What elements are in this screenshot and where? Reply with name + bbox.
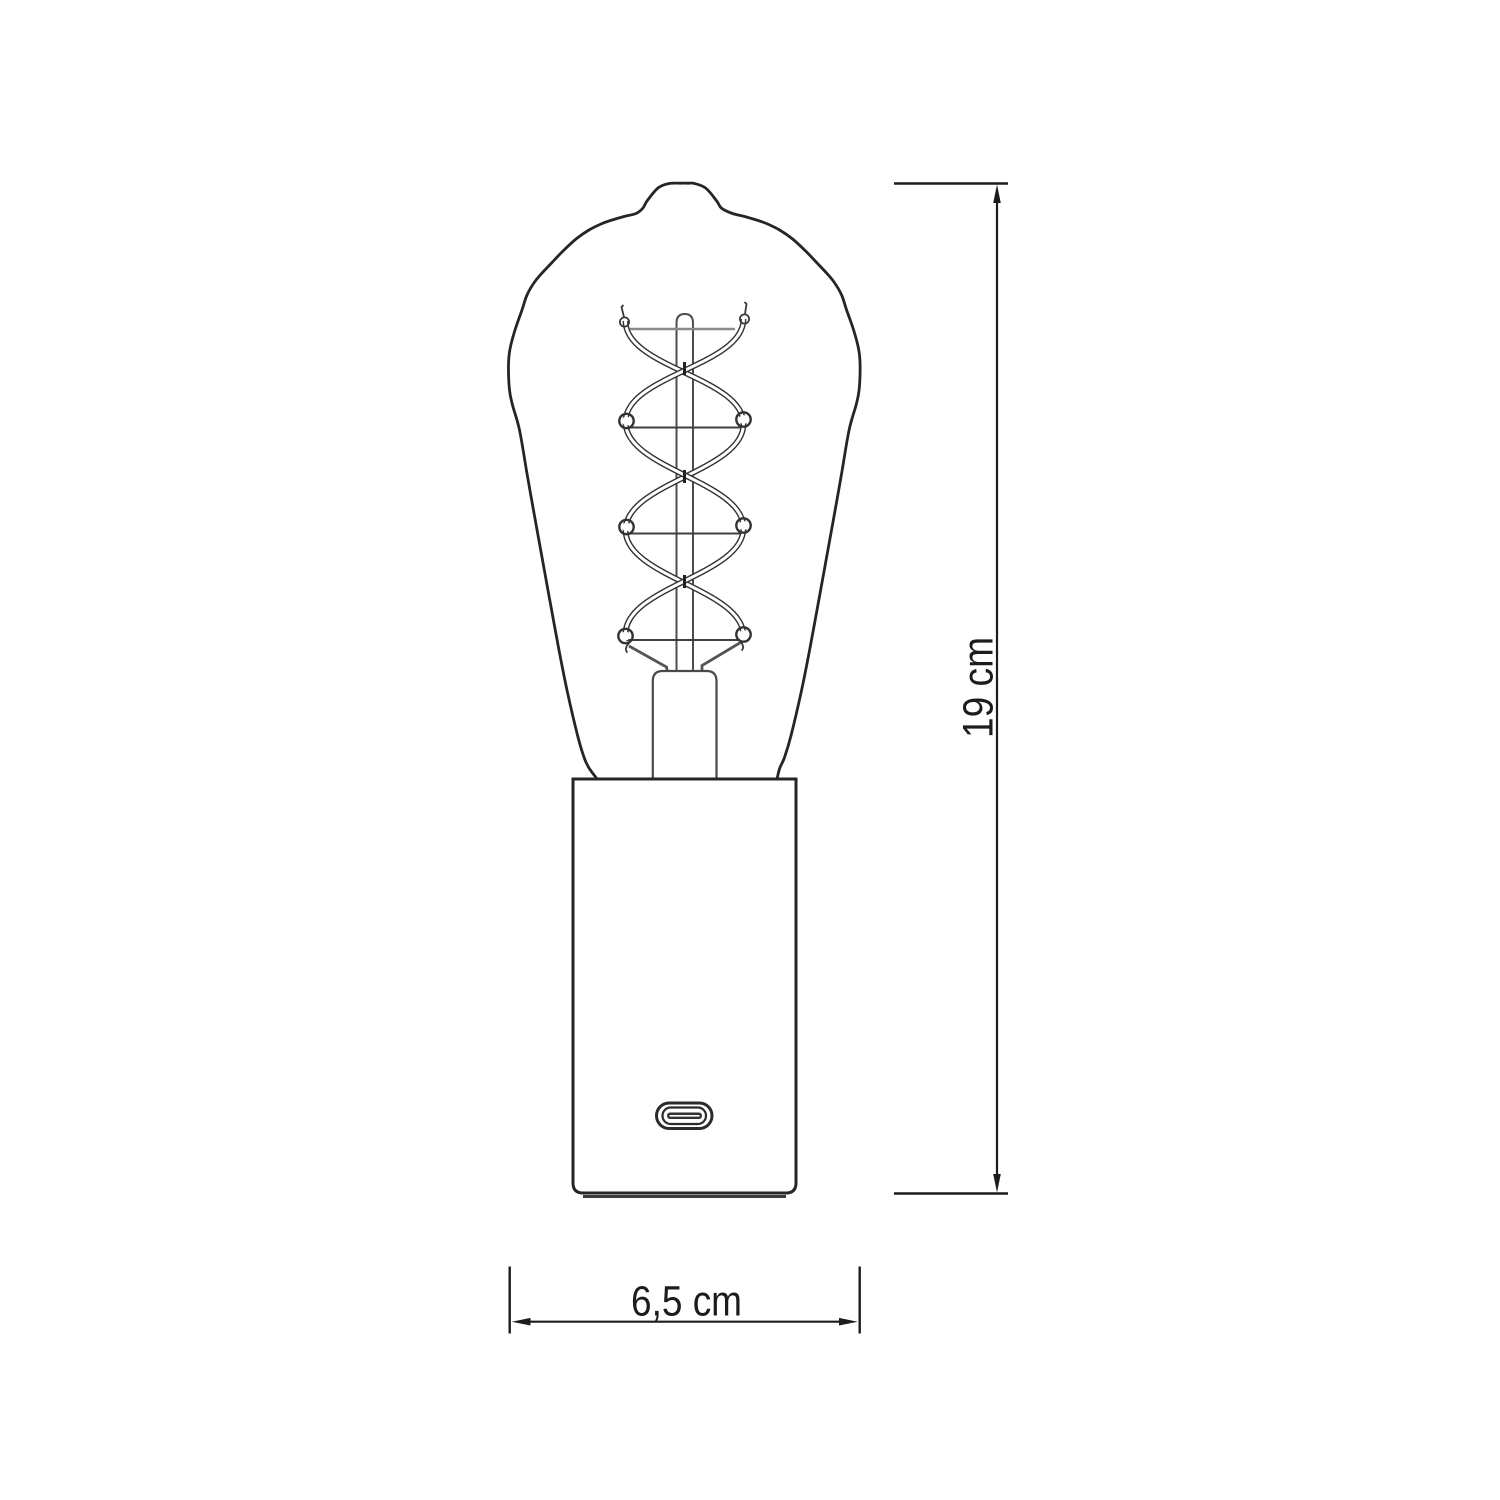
svg-text:6,5 cm: 6,5 cm <box>631 1278 742 1326</box>
svg-text:19 cm: 19 cm <box>955 637 1003 738</box>
